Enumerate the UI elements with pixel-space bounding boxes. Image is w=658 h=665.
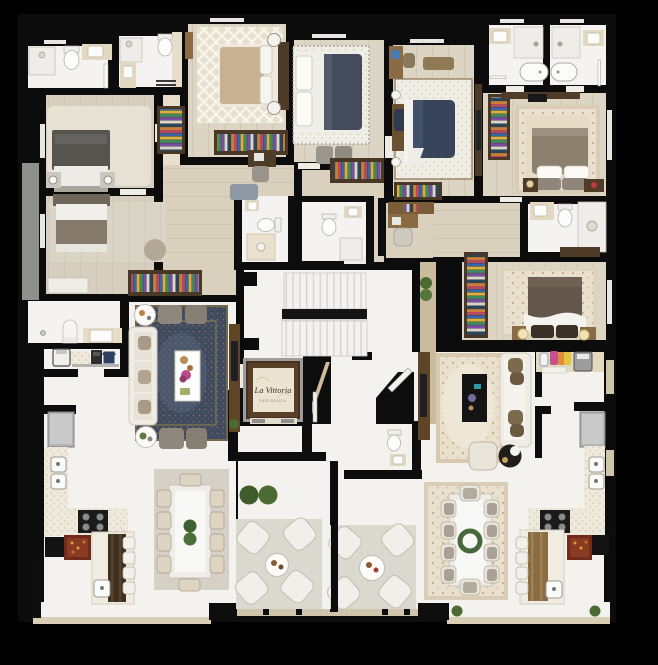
svg-text:La Vittoria: La Vittoria (254, 385, 292, 395)
svg-text:RESIDENZA: RESIDENZA (259, 399, 286, 403)
